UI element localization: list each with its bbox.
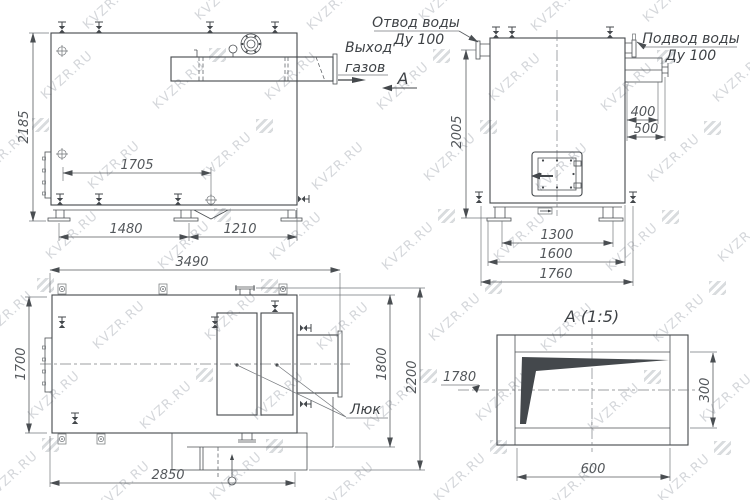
dim-top-front: 1705 bbox=[120, 158, 153, 173]
dim-base-left: 1480 bbox=[109, 222, 142, 237]
drawing-sheet: KVZR.RUKVZR.RUKVZR.RUKVZR.RUKVZR.RUKVZR.… bbox=[0, 0, 750, 500]
section-letter: А bbox=[397, 69, 409, 88]
gas-outlet-label-line1: Выход bbox=[345, 40, 392, 56]
water-inlet-label-line2: Ду 100 bbox=[665, 48, 716, 64]
dim-length-plan: 3490 bbox=[175, 255, 208, 270]
dim-bottom-plan: 2850 bbox=[151, 468, 184, 483]
gas-outlet-label-line2: газов bbox=[345, 60, 385, 76]
dim-base: 1600 bbox=[539, 247, 572, 262]
dim-overall: 1760 bbox=[539, 267, 572, 282]
level-mark-arrow bbox=[472, 385, 480, 393]
dim-height-side: 2005 bbox=[450, 115, 465, 148]
gas-duct-flange bbox=[333, 54, 337, 84]
dim-detail-width: 600 bbox=[581, 462, 606, 477]
dim-width-duct: 1800 bbox=[375, 347, 390, 380]
boiler-technical-drawing: А Выход газов 2185 1705 1480 1210 bbox=[0, 0, 750, 500]
burner-flange-plan bbox=[45, 338, 52, 392]
dim-duct: 400 bbox=[631, 105, 656, 120]
water-outlet-label-line1: Отвод воды bbox=[372, 15, 460, 31]
detail-view: А (1:5) 1780 600 300 bbox=[441, 307, 717, 481]
water-outlet-label-line2: Ду 100 bbox=[393, 32, 444, 48]
dim-width-plan: 1700 bbox=[14, 347, 29, 380]
side-view: Отвод воды Ду 100 Подвод воды Ду 100 200… bbox=[372, 15, 739, 286]
access-door bbox=[531, 152, 582, 196]
dim-detail-height: 300 bbox=[698, 378, 713, 403]
dim-base-inner: 1300 bbox=[540, 228, 573, 243]
water-inlet-flange bbox=[632, 40, 636, 57]
gas-duct bbox=[171, 57, 333, 81]
hatch-label: Люк bbox=[349, 402, 381, 418]
dim-base-right: 1210 bbox=[223, 222, 256, 237]
front-view: А Выход газов 2185 1705 1480 1210 bbox=[17, 22, 417, 241]
water-inlet-label-line1: Подвод воды bbox=[642, 31, 739, 47]
drain-pipe-end bbox=[228, 477, 236, 485]
gas-flow-arrow bbox=[338, 77, 366, 83]
dim-level: 1780 bbox=[443, 370, 476, 385]
detail-title: А (1:5) bbox=[564, 307, 619, 326]
plan-view: Люк 3490 1700 1800 2200 2850 bbox=[14, 255, 425, 487]
water-outlet-flange bbox=[476, 41, 480, 59]
bottom-box bbox=[172, 433, 307, 470]
weld-wedge bbox=[520, 357, 669, 424]
dim-width-overall: 2200 bbox=[405, 360, 420, 393]
dim-duct-flange: 500 bbox=[634, 122, 659, 137]
dim-height-front: 2185 bbox=[17, 110, 32, 143]
burner-flange bbox=[45, 152, 51, 198]
